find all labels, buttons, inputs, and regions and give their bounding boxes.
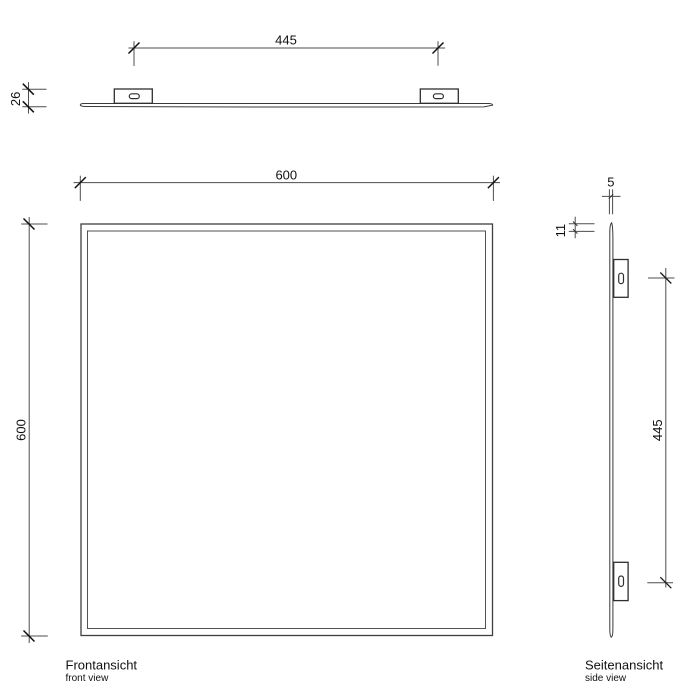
svg-text:11: 11 [553, 224, 568, 238]
svg-text:600: 600 [13, 419, 28, 441]
svg-text:5: 5 [607, 174, 614, 189]
svg-text:front view: front view [66, 673, 110, 684]
svg-text:445: 445 [650, 419, 665, 441]
svg-text:Seitenansicht: Seitenansicht [585, 657, 663, 672]
svg-text:445: 445 [275, 32, 297, 47]
svg-text:600: 600 [275, 167, 297, 182]
svg-text:side view: side view [585, 673, 627, 684]
svg-text:26: 26 [8, 92, 23, 106]
svg-text:Frontansicht: Frontansicht [66, 657, 138, 672]
